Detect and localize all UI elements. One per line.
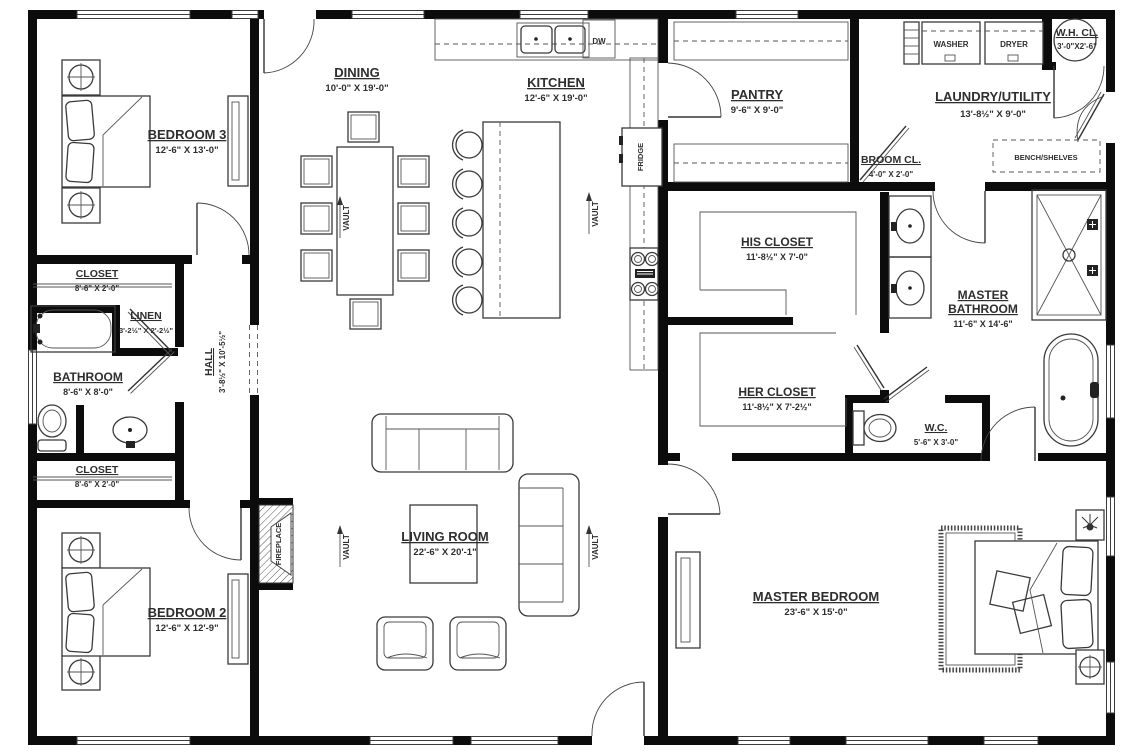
broom-closet-name: BROOM CL. [861, 154, 921, 166]
vault-label: VAULT [591, 534, 600, 560]
master-bedroom-dims: 23'-6" X 15'-0" [784, 607, 847, 618]
vault-arrow-living-west: VAULT [337, 525, 351, 567]
washer-label: WASHER [933, 40, 968, 49]
vault-arrow-kitchen: VAULT [586, 192, 600, 234]
kitchen-island [453, 122, 560, 318]
her-closet-dims: 11'-8½" X 7'-2½" [742, 402, 811, 412]
dining-dims: 10'-0" X 19'-0" [325, 83, 388, 94]
dresser [228, 96, 248, 186]
laundry-name: LAUNDRY/UTILITY [935, 89, 1051, 104]
sofa-east [519, 474, 579, 616]
wc-name: W.C. [925, 422, 948, 434]
master-bedroom-furniture [676, 510, 1104, 684]
exterior-walls [28, 10, 1115, 745]
vault-label: VAULT [342, 205, 351, 231]
bedroom3-name: BEDROOM 3 [148, 127, 227, 142]
his-closet-name: HIS CLOSET [741, 235, 814, 249]
wh-closet-name: W.H. CL. [1056, 27, 1099, 39]
dining-set [301, 112, 429, 329]
coffee-table [410, 505, 477, 583]
windows [29, 11, 1115, 745]
bench-shelves-label: BENCH/SHELVES [1014, 153, 1077, 162]
bedroom2-name: BEDROOM 2 [148, 605, 227, 620]
hall-dims: 3'-8½" X 10'-5½" [218, 331, 227, 393]
hall-name: HALL [203, 347, 215, 376]
wc-toilet [853, 411, 896, 445]
bed [975, 541, 1098, 654]
vault-label: VAULT [591, 201, 600, 227]
armchair-west [377, 617, 433, 670]
master-tub [1044, 334, 1099, 446]
wc-dims: 5'-6" X 3'-0" [914, 438, 959, 447]
doors [128, 19, 1104, 736]
closet-north-dims: 8'-6" X 2'-0" [75, 284, 120, 293]
hall-label: HALL 3'-8½" X 10'-5½" [203, 331, 227, 393]
master-bathroom-name1: MASTER [958, 288, 1009, 302]
dining-name: DINING [334, 65, 380, 80]
kitchen-name: KITCHEN [527, 75, 585, 90]
closet-north-name: CLOSET [76, 268, 119, 280]
floor-plan-sheet: DW FRIDGE WASHER DRYER [0, 0, 1122, 752]
bedroom3-dims: 12'-6" X 13'-0" [155, 145, 218, 156]
his-closet-dims: 11'-8½" X 7'-0" [746, 252, 808, 262]
pantry-shelves [674, 22, 848, 182]
bathroom-name: BATHROOM [53, 370, 123, 384]
bar-stools [453, 130, 482, 315]
her-closet-name: HER CLOSET [738, 385, 816, 399]
hall-opening [250, 325, 258, 395]
kitchen-sink [517, 23, 589, 57]
wh-closet-dims: 3'-0"X2'-6" [1057, 42, 1097, 51]
floor-plan-drawing: DW FRIDGE WASHER DRYER [0, 0, 1122, 752]
fireplace-label: FIREPLACE [274, 523, 283, 566]
range [630, 248, 659, 300]
closet-south-dims: 8'-6" X 2'-0" [75, 480, 120, 489]
bed [62, 96, 150, 187]
fridge-label: FRIDGE [636, 143, 645, 171]
kitchen-dims: 12'-6" X 19'-0" [524, 93, 587, 104]
dishwasher-label: DW [592, 37, 606, 46]
vault-arrow-living-east: VAULT [586, 525, 600, 567]
pantry-dims: 9'-6" X 9'-0" [731, 105, 784, 116]
her-closet-shelves [700, 333, 846, 426]
closet-south-name: CLOSET [76, 464, 119, 476]
master-bathroom-dims: 11'-6" X 14'-6" [953, 319, 1012, 329]
fireplace: FIREPLACE [259, 498, 293, 590]
dryer-label: DRYER [1000, 40, 1028, 49]
living-room-name: LIVING ROOM [401, 529, 488, 544]
vault-label: VAULT [342, 534, 351, 560]
master-bathroom-name2: BATHROOM [948, 302, 1018, 316]
living-room-dims: 22'-6" X 20'-1" [413, 547, 476, 558]
armchair-east [450, 617, 506, 670]
dresser [676, 552, 700, 648]
bathroom-dims: 8'-6" X 8'-0" [63, 387, 113, 397]
water-heater [1054, 19, 1096, 61]
bedroom2-dims: 12'-6" X 12'-9" [155, 623, 218, 634]
master-bedroom-name: MASTER BEDROOM [753, 589, 879, 604]
linen-name: LINEN [130, 310, 162, 322]
sofa-north [372, 414, 513, 472]
pantry-name: PANTRY [731, 87, 783, 102]
his-closet-shelves [700, 212, 856, 315]
master-vanities [889, 196, 931, 318]
linen-dims: 3'-2½" X 2'-2½" [119, 326, 173, 335]
dresser [228, 574, 248, 664]
broom-closet-dims: 4'-0" X 2'-0" [869, 170, 914, 179]
shower [1032, 190, 1106, 320]
laundry-dims: 13'-8½" X 9'-0" [960, 109, 1026, 120]
